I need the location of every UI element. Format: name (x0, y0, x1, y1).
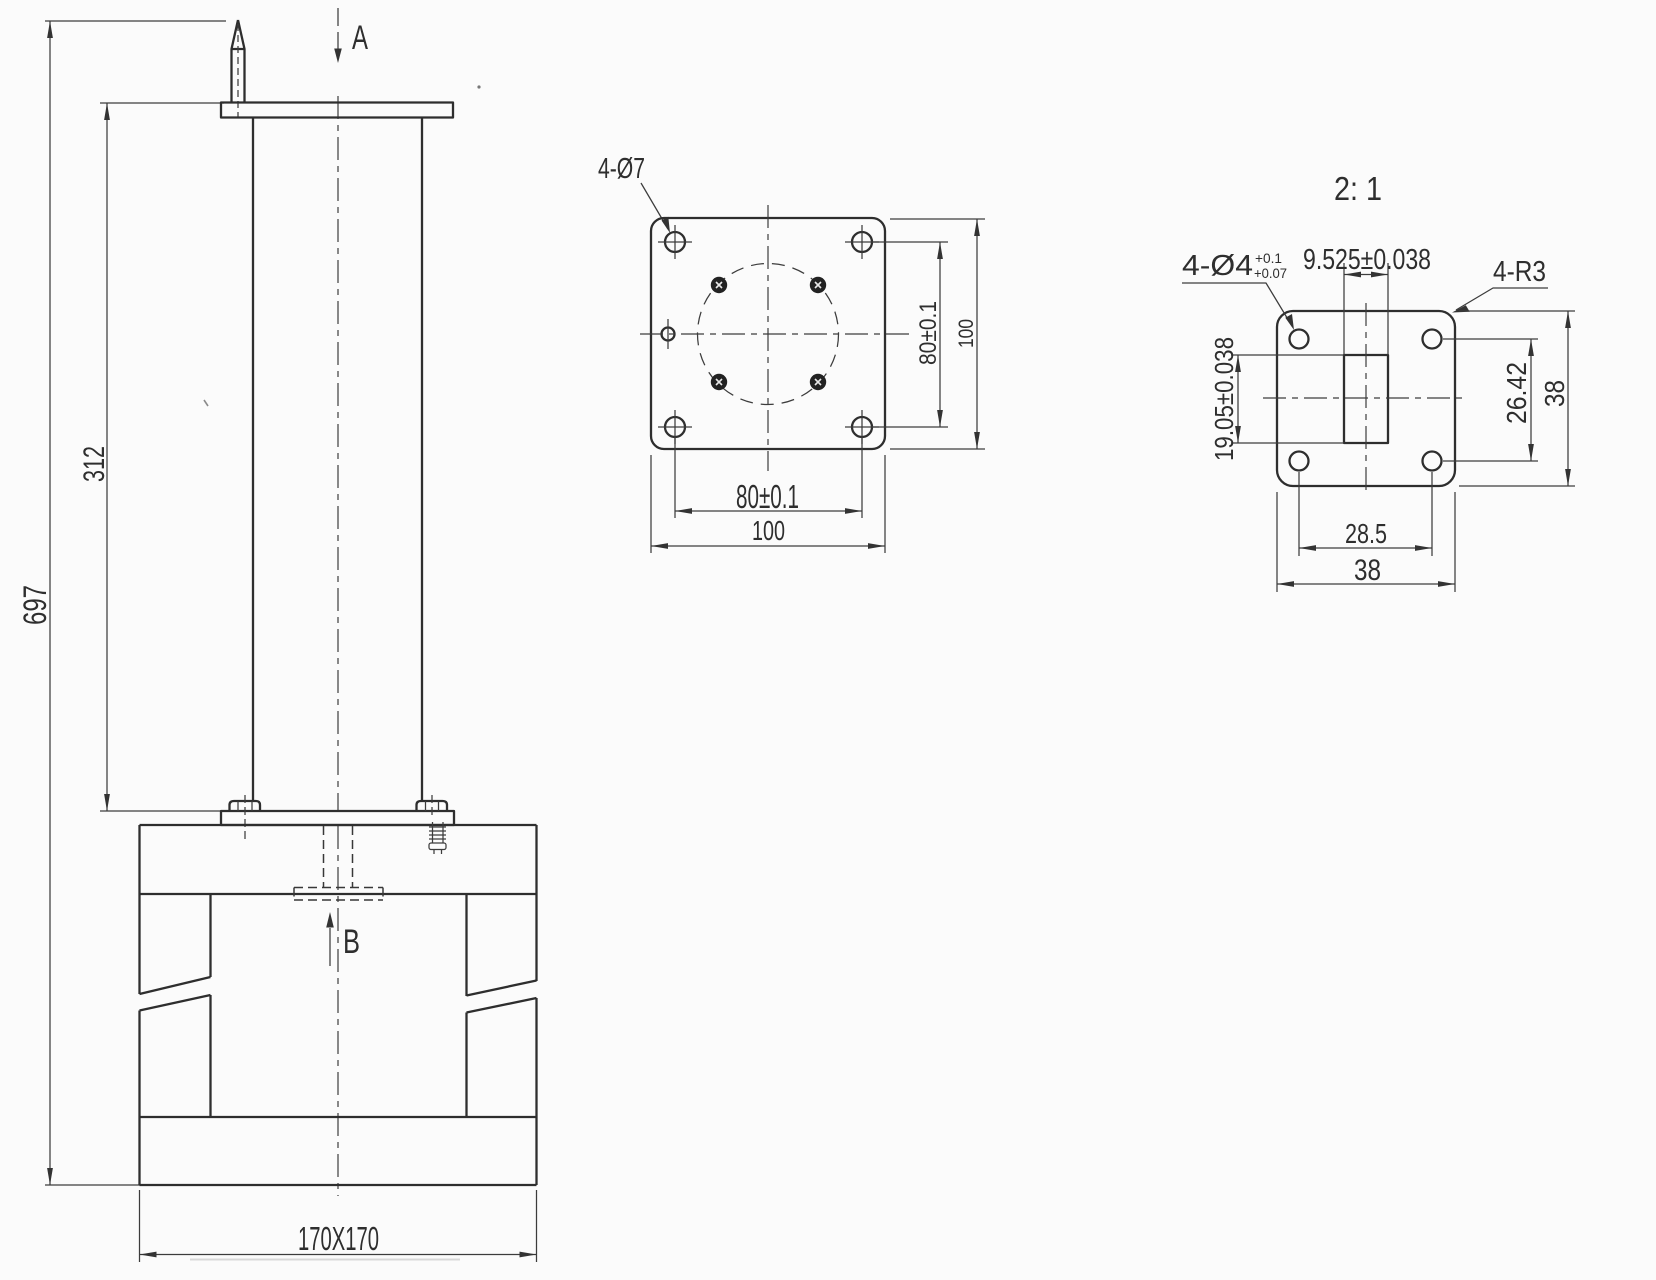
svg-text:4-R3: 4-R3 (1493, 256, 1546, 288)
svg-text:2: 1: 2: 1 (1334, 170, 1382, 207)
svg-text:B: B (343, 923, 360, 961)
svg-text:A: A (352, 19, 368, 57)
svg-text:38: 38 (1539, 380, 1570, 407)
svg-text:19.05±0.038: 19.05±0.038 (1209, 337, 1239, 461)
svg-text:9.525±0.038: 9.525±0.038 (1303, 244, 1431, 276)
svg-text:100: 100 (752, 515, 785, 546)
svg-text:312: 312 (78, 446, 111, 482)
svg-text:80±0.1: 80±0.1 (915, 301, 942, 365)
svg-text:26.42: 26.42 (1501, 362, 1532, 424)
svg-text:38: 38 (1354, 554, 1381, 587)
svg-text:4-Ø4: 4-Ø4 (1182, 250, 1253, 282)
svg-text:+0.1: +0.1 (1255, 250, 1282, 266)
svg-text:28.5: 28.5 (1345, 518, 1387, 549)
svg-text:4-Ø7: 4-Ø7 (598, 153, 645, 185)
svg-text:170X170: 170X170 (298, 1220, 379, 1257)
svg-text:100: 100 (955, 319, 978, 348)
svg-text:697: 697 (17, 585, 53, 625)
svg-text:80±0.1: 80±0.1 (736, 478, 799, 515)
svg-text:+0.07: +0.07 (1254, 265, 1287, 281)
